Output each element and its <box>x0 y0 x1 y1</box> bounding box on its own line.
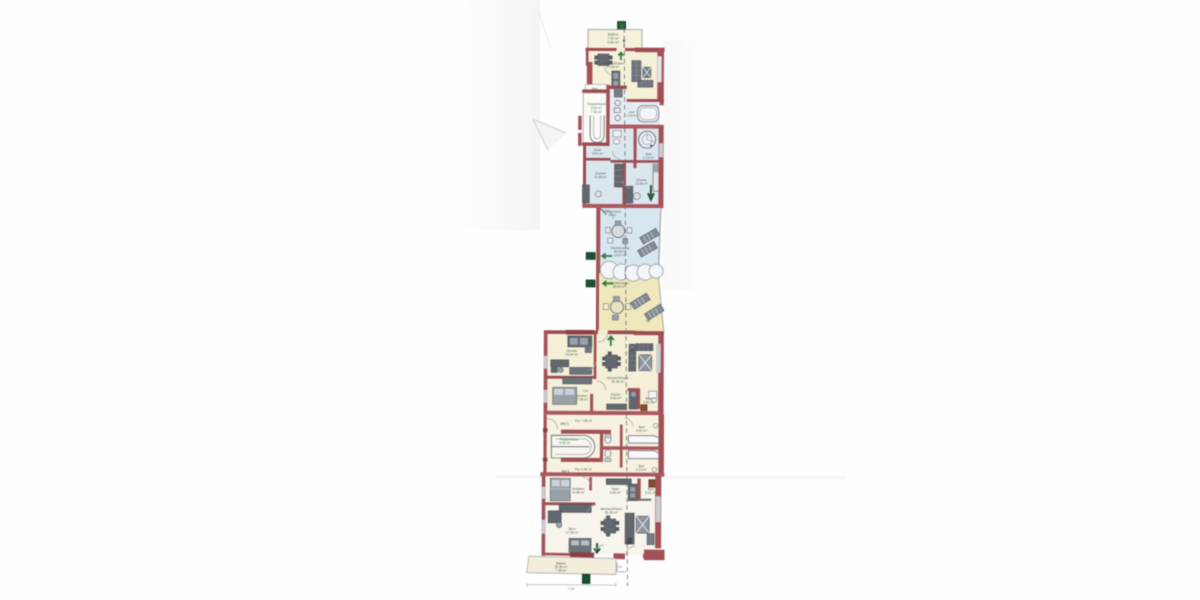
svg-text:5.60 m²: 5.60 m² <box>610 396 621 400</box>
svg-text:7.18: 7.18 <box>568 587 575 591</box>
svg-text:5.50 m²: 5.50 m² <box>627 114 637 118</box>
svg-text:9.01 m²: 9.01 m² <box>592 152 603 156</box>
svg-text:14.05 m²: 14.05 m² <box>635 182 648 186</box>
svg-text:6.13 m²: 6.13 m² <box>636 468 647 472</box>
svg-text:5.06 m²: 5.06 m² <box>610 491 621 495</box>
svg-text:Flur 7.98 m²: Flur 7.98 m² <box>575 419 592 423</box>
svg-text:Flur 5.06 m²: Flur 5.06 m² <box>575 467 592 471</box>
svg-text:5%: 5% <box>618 565 623 569</box>
svg-text:13.96 m²: 13.96 m² <box>565 352 578 356</box>
svg-text:36 m²: 36 m² <box>608 213 616 217</box>
svg-text:17.08 m²: 17.08 m² <box>566 530 579 534</box>
svg-text:14.57 m²: 14.57 m² <box>614 253 627 257</box>
svg-text:5.91 m²: 5.91 m² <box>645 491 656 495</box>
svg-text:6.16 m²: 6.16 m² <box>643 156 654 160</box>
svg-text:11.88 m²: 11.88 m² <box>594 175 606 179</box>
svg-text:9.50 m²: 9.50 m² <box>559 441 570 445</box>
svg-text:7.50 m²: 7.50 m² <box>591 110 602 114</box>
svg-text:Flur: Flur <box>583 389 588 393</box>
svg-text:35.36 m²: 35.36 m² <box>605 511 618 515</box>
svg-text:17.08 m²: 17.08 m² <box>575 397 588 401</box>
svg-text:5.91 m²: 5.91 m² <box>636 429 647 433</box>
svg-text:11.88 m²: 11.88 m² <box>572 490 584 494</box>
svg-text:5%: 5% <box>646 319 651 323</box>
svg-text:36.00 m²: 36.00 m² <box>613 285 626 289</box>
svg-text:27.08 m²: 27.08 m² <box>607 65 620 69</box>
svg-text:AW 5: AW 5 <box>560 422 568 426</box>
svg-text:35.36 m²: 35.36 m² <box>611 380 624 384</box>
svg-text:3.80 m²: 3.80 m² <box>607 41 619 45</box>
svg-text:7.58 m²: 7.58 m² <box>556 569 567 573</box>
